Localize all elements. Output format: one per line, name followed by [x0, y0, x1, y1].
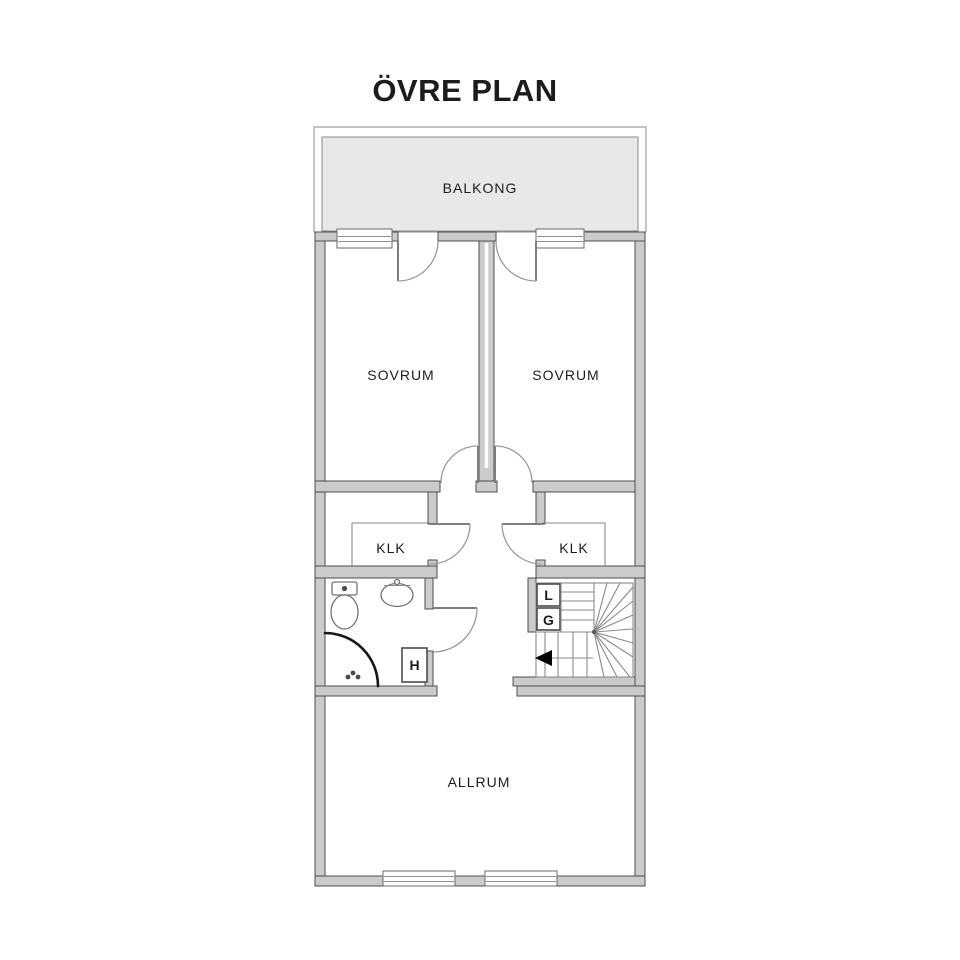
- closet-left-label: KLK: [376, 540, 405, 556]
- wall-segment: [425, 578, 433, 609]
- balcony: BALKONG: [314, 127, 646, 232]
- wall-segment: [557, 876, 645, 886]
- wall-segment: [315, 481, 440, 492]
- door-swing-arc: [430, 524, 470, 564]
- balcony-label: BALKONG: [443, 180, 518, 196]
- stair-winder-center: [592, 630, 596, 634]
- bathroom-cabinet-h-label: H: [409, 657, 419, 673]
- window: [383, 871, 455, 886]
- toilet-button-icon: [342, 586, 347, 591]
- stair-cabinet-g-label: G: [543, 612, 554, 628]
- wall-segment: [392, 232, 398, 241]
- wall-segment: [536, 566, 645, 578]
- door-swing-arc: [495, 446, 532, 483]
- wall-segment: [536, 492, 545, 524]
- door-swing-arc: [441, 446, 478, 483]
- window: [536, 229, 584, 248]
- bedroom-right-label: SOVRUM: [532, 367, 599, 383]
- door-swing-arc: [433, 608, 477, 652]
- closet-right-label: KLK: [559, 540, 588, 556]
- wall-segment: [476, 481, 497, 492]
- toilet-bowl-icon: [331, 595, 358, 629]
- wall-segment: [513, 677, 635, 686]
- doors: [398, 241, 542, 652]
- wall-segment: [528, 578, 536, 632]
- stair-direction-arrow: [535, 650, 552, 666]
- shower-head-icon: [346, 671, 361, 680]
- door-swing-arc: [496, 241, 536, 281]
- living-room-label: ALLRUM: [448, 774, 511, 790]
- door-swing-arc: [398, 241, 438, 281]
- wall-segment: [517, 686, 645, 696]
- stair-cabinet-l-label: L: [544, 587, 553, 603]
- floor-plan-drawing: ÖVRE PLAN BALKONG: [0, 0, 960, 960]
- wall-segment: [635, 232, 645, 886]
- bathroom: H: [325, 580, 427, 687]
- wall-segment: [315, 686, 437, 696]
- wall-segment: [315, 232, 325, 886]
- door-swing-arc: [502, 524, 542, 564]
- wall-segment: [584, 232, 645, 241]
- staircase: L G: [535, 583, 633, 677]
- wall-segment: [455, 876, 485, 886]
- window: [485, 871, 557, 886]
- window: [337, 229, 392, 248]
- wall-segment: [428, 492, 437, 524]
- bedroom-left-label: SOVRUM: [367, 367, 434, 383]
- wall-segment: [315, 566, 437, 578]
- shower-enclosure-icon: [325, 633, 378, 686]
- sink-icon: [381, 584, 413, 607]
- wall-segment: [438, 232, 496, 241]
- wall-segment: [315, 232, 337, 241]
- wall-segment: [315, 876, 383, 886]
- sink-tap-icon: [395, 580, 400, 585]
- plan-title: ÖVRE PLAN: [372, 73, 557, 108]
- wall-segment: [533, 481, 635, 492]
- floor-plan-page: ÖVRE PLAN BALKONG: [0, 0, 960, 960]
